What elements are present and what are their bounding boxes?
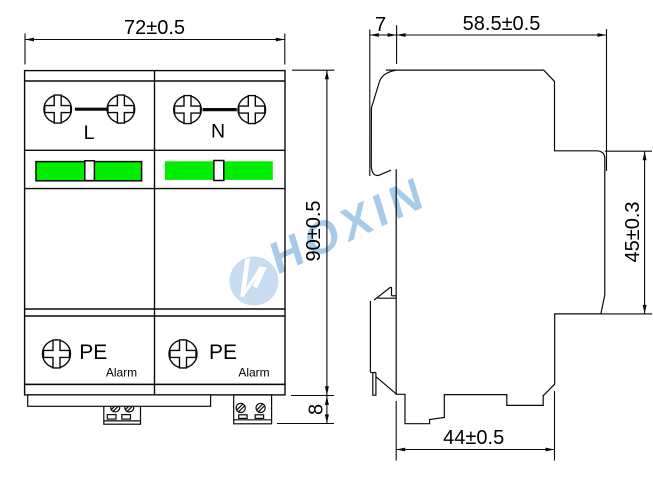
svg-text:Alarm: Alarm [106, 366, 137, 380]
svg-text:58.5±0.5: 58.5±0.5 [463, 13, 541, 35]
svg-text:8: 8 [305, 404, 327, 415]
svg-text:45±0.3: 45±0.3 [622, 201, 644, 262]
svg-text:Alarm: Alarm [238, 366, 269, 380]
svg-text:PE: PE [209, 341, 237, 364]
svg-text:N: N [211, 121, 225, 143]
svg-text:72±0.5: 72±0.5 [124, 17, 185, 39]
svg-text:44±0.5: 44±0.5 [443, 427, 504, 449]
svg-text:7: 7 [375, 14, 386, 36]
svg-text:PE: PE [79, 341, 107, 364]
svg-text:90±0.5: 90±0.5 [303, 200, 325, 261]
svg-text:L: L [84, 122, 95, 144]
